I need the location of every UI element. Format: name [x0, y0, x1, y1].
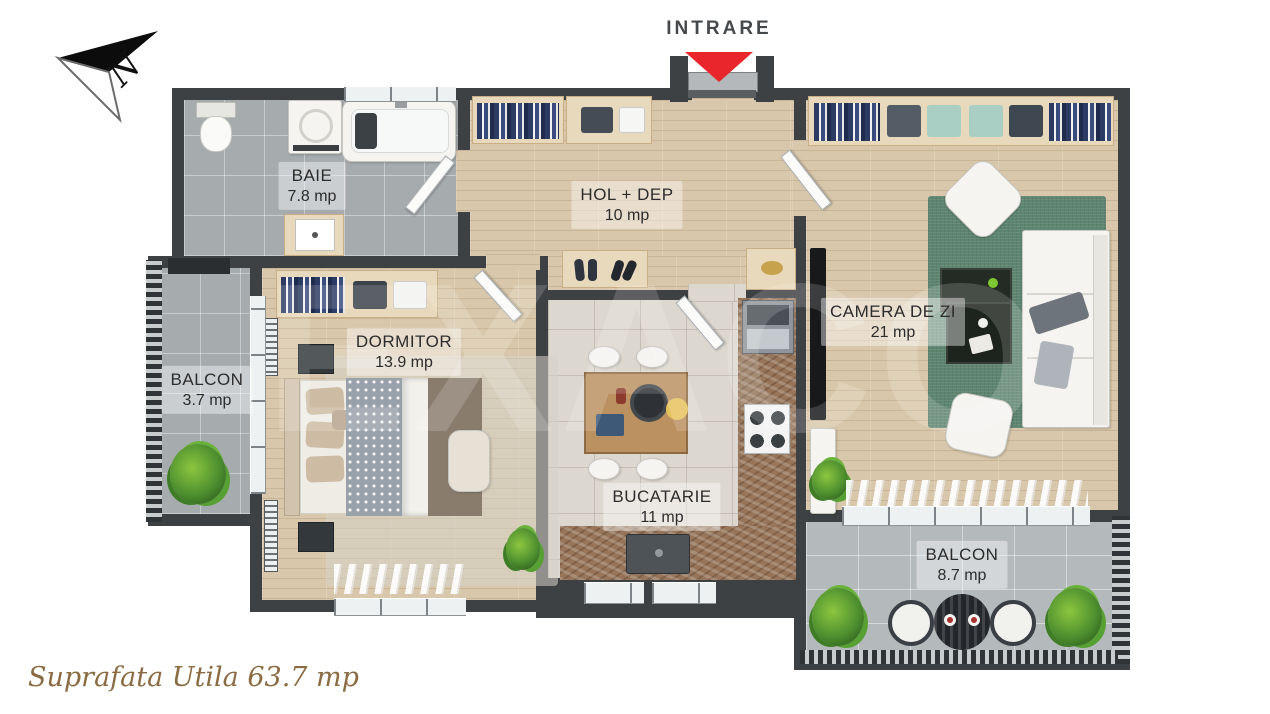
- bed-quilt: [346, 378, 410, 516]
- bedroom-wardrobe: [276, 270, 438, 318]
- hol-wardrobe: [472, 96, 564, 144]
- label-balcon-left: BALCON 3.7 mp: [162, 366, 253, 414]
- entrance-threshold: [688, 90, 756, 98]
- drapes-dormitor: [334, 564, 466, 594]
- railing-balcon-left: [146, 260, 162, 522]
- nightstand-bottom: [298, 522, 334, 552]
- balcony-chair-right: [990, 600, 1036, 646]
- kitchen-sink: [626, 534, 690, 574]
- room-name: DORMITOR: [356, 331, 452, 353]
- plant-balcon-left: [170, 444, 226, 504]
- sofa-throw: [1028, 291, 1090, 335]
- radiator: [264, 318, 278, 376]
- railing-balcon-bottom-right: [1112, 516, 1130, 664]
- shoe: [574, 259, 585, 282]
- stove: [744, 404, 790, 454]
- label-dormitor: DORMITOR 13.9 mp: [347, 328, 461, 376]
- window-bucatarie-1: [584, 582, 644, 604]
- north-arrow: N: [52, 26, 167, 126]
- bathtub-faucet: [395, 101, 407, 108]
- plant-living: [812, 460, 848, 500]
- bedroom-armchair: [448, 430, 490, 492]
- bed-headboard: [284, 378, 300, 516]
- room-area: 13.9 mp: [356, 353, 452, 373]
- window-dormitor-south: [334, 598, 466, 616]
- shoe: [588, 259, 597, 281]
- nightstand-top: [298, 344, 334, 374]
- label-bucatarie: BUCATARIE 11 mp: [603, 483, 720, 531]
- serving-tray: [630, 384, 668, 422]
- folded-shirt-dark: [1009, 105, 1043, 137]
- room-name: BUCATARIE: [612, 486, 711, 508]
- bathtub-mat: [355, 113, 377, 149]
- folded-shirt-white: [619, 107, 645, 133]
- entrance-arrow-icon: [685, 52, 753, 82]
- hanging-clothes: [477, 103, 559, 139]
- drapes-living: [846, 480, 1088, 506]
- hol-cabinet: [566, 96, 652, 144]
- toilet: [196, 102, 236, 154]
- hol-console: [746, 248, 796, 290]
- cup-drink: [947, 617, 953, 623]
- sink-faucet: [655, 549, 663, 557]
- folded-shirt-dark: [353, 281, 387, 309]
- hanging-clothes: [814, 103, 880, 141]
- sofa-blanket: [1033, 340, 1074, 389]
- washing-machine: [288, 100, 342, 154]
- pillow: [306, 455, 345, 482]
- toilet-bowl: [200, 116, 232, 152]
- dining-chair: [636, 458, 668, 480]
- bathtub: [342, 100, 456, 162]
- label-baie: BAIE 7.8 mp: [279, 162, 346, 210]
- label-hol: HOL + DEP 10 mp: [571, 181, 682, 229]
- floor-plan-canvas: N INTRARE: [0, 0, 1270, 714]
- hanging-clothes: [1049, 103, 1111, 141]
- plate-yellow: [666, 398, 688, 420]
- fridge-top: [747, 305, 789, 325]
- bottle: [616, 388, 626, 404]
- plant-balcon-2: [1048, 588, 1102, 646]
- room-area: 8.7 mp: [926, 566, 999, 586]
- folded-shirt-dark: [581, 107, 613, 133]
- entrance-label: INTRARE: [666, 18, 771, 40]
- hanging-clothes: [281, 277, 345, 313]
- shoe-cabinet: [562, 250, 648, 288]
- window-living-balcon: [842, 506, 1090, 526]
- dining-chair: [588, 458, 620, 480]
- decor-green: [988, 278, 998, 288]
- washing-machine-drum: [299, 109, 333, 143]
- opening-dormitor: [486, 254, 540, 270]
- bathroom-vanity: [284, 214, 344, 256]
- window-bucatarie-2: [652, 582, 716, 604]
- railing-balcon-bottom: [800, 650, 1118, 664]
- room-name: BALCON: [171, 369, 244, 391]
- sofa-backrest: [1093, 235, 1108, 425]
- cup: [968, 614, 980, 626]
- radiator: [264, 500, 278, 572]
- decor-gold: [761, 261, 783, 275]
- plant-dormitor: [506, 528, 540, 570]
- opening-baie: [456, 150, 474, 212]
- decor-bowl: [978, 318, 988, 328]
- living-wardrobe-row: [808, 96, 1114, 146]
- room-area: 3.7 mp: [171, 391, 244, 411]
- dining-set: [580, 346, 692, 482]
- folded-shirt-dark: [887, 105, 921, 137]
- label-balcon-bottom: BALCON 8.7 mp: [917, 541, 1008, 589]
- fridge: [742, 300, 794, 354]
- sofa-cushion-seam: [1027, 293, 1093, 295]
- total-usable-area: Suprafata Utila 63.7 mp: [28, 662, 359, 693]
- fridge-front: [747, 329, 789, 349]
- entrance-jamb-right: [756, 56, 774, 102]
- folded-shirt-teal: [969, 105, 1003, 137]
- folded-shirt-white: [393, 281, 427, 309]
- laptop: [596, 414, 624, 436]
- dining-table: [584, 372, 688, 454]
- folded-shirt-teal: [927, 105, 961, 137]
- label-camera-de-zi: CAMERA DE ZI 21 mp: [821, 298, 965, 346]
- window-baie-north: [344, 86, 456, 102]
- balcony-chair-left: [888, 600, 934, 646]
- room-name: BALCON: [926, 544, 999, 566]
- room-area: 7.8 mp: [288, 187, 337, 207]
- room-name: HOL + DEP: [580, 184, 673, 206]
- cup: [944, 614, 956, 626]
- sink-drain: [312, 232, 318, 238]
- room-area: 21 mp: [830, 323, 956, 343]
- room-name: CAMERA DE ZI: [830, 301, 956, 323]
- sofa: [1022, 230, 1110, 428]
- room-name: BAIE: [288, 165, 337, 187]
- cup-drink: [971, 617, 977, 623]
- room-area: 11 mp: [612, 508, 711, 528]
- room-area: 10 mp: [580, 206, 673, 226]
- balcony-table: [934, 594, 990, 650]
- dining-chair: [588, 346, 620, 368]
- balcony-wall-unit: [168, 258, 230, 274]
- washing-machine-handle: [293, 145, 339, 151]
- plant-balcon-1: [812, 588, 864, 646]
- dining-chair: [636, 346, 668, 368]
